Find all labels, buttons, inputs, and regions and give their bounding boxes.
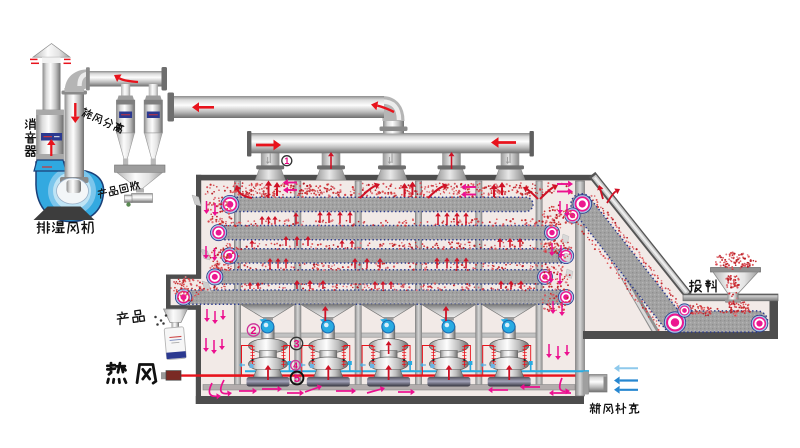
svg-text:4: 4 <box>293 360 298 370</box>
svg-text:1: 1 <box>284 156 289 166</box>
svg-text:2: 2 <box>250 325 256 337</box>
svg-text:3: 3 <box>293 338 299 350</box>
svg-text:5: 5 <box>294 373 300 385</box>
